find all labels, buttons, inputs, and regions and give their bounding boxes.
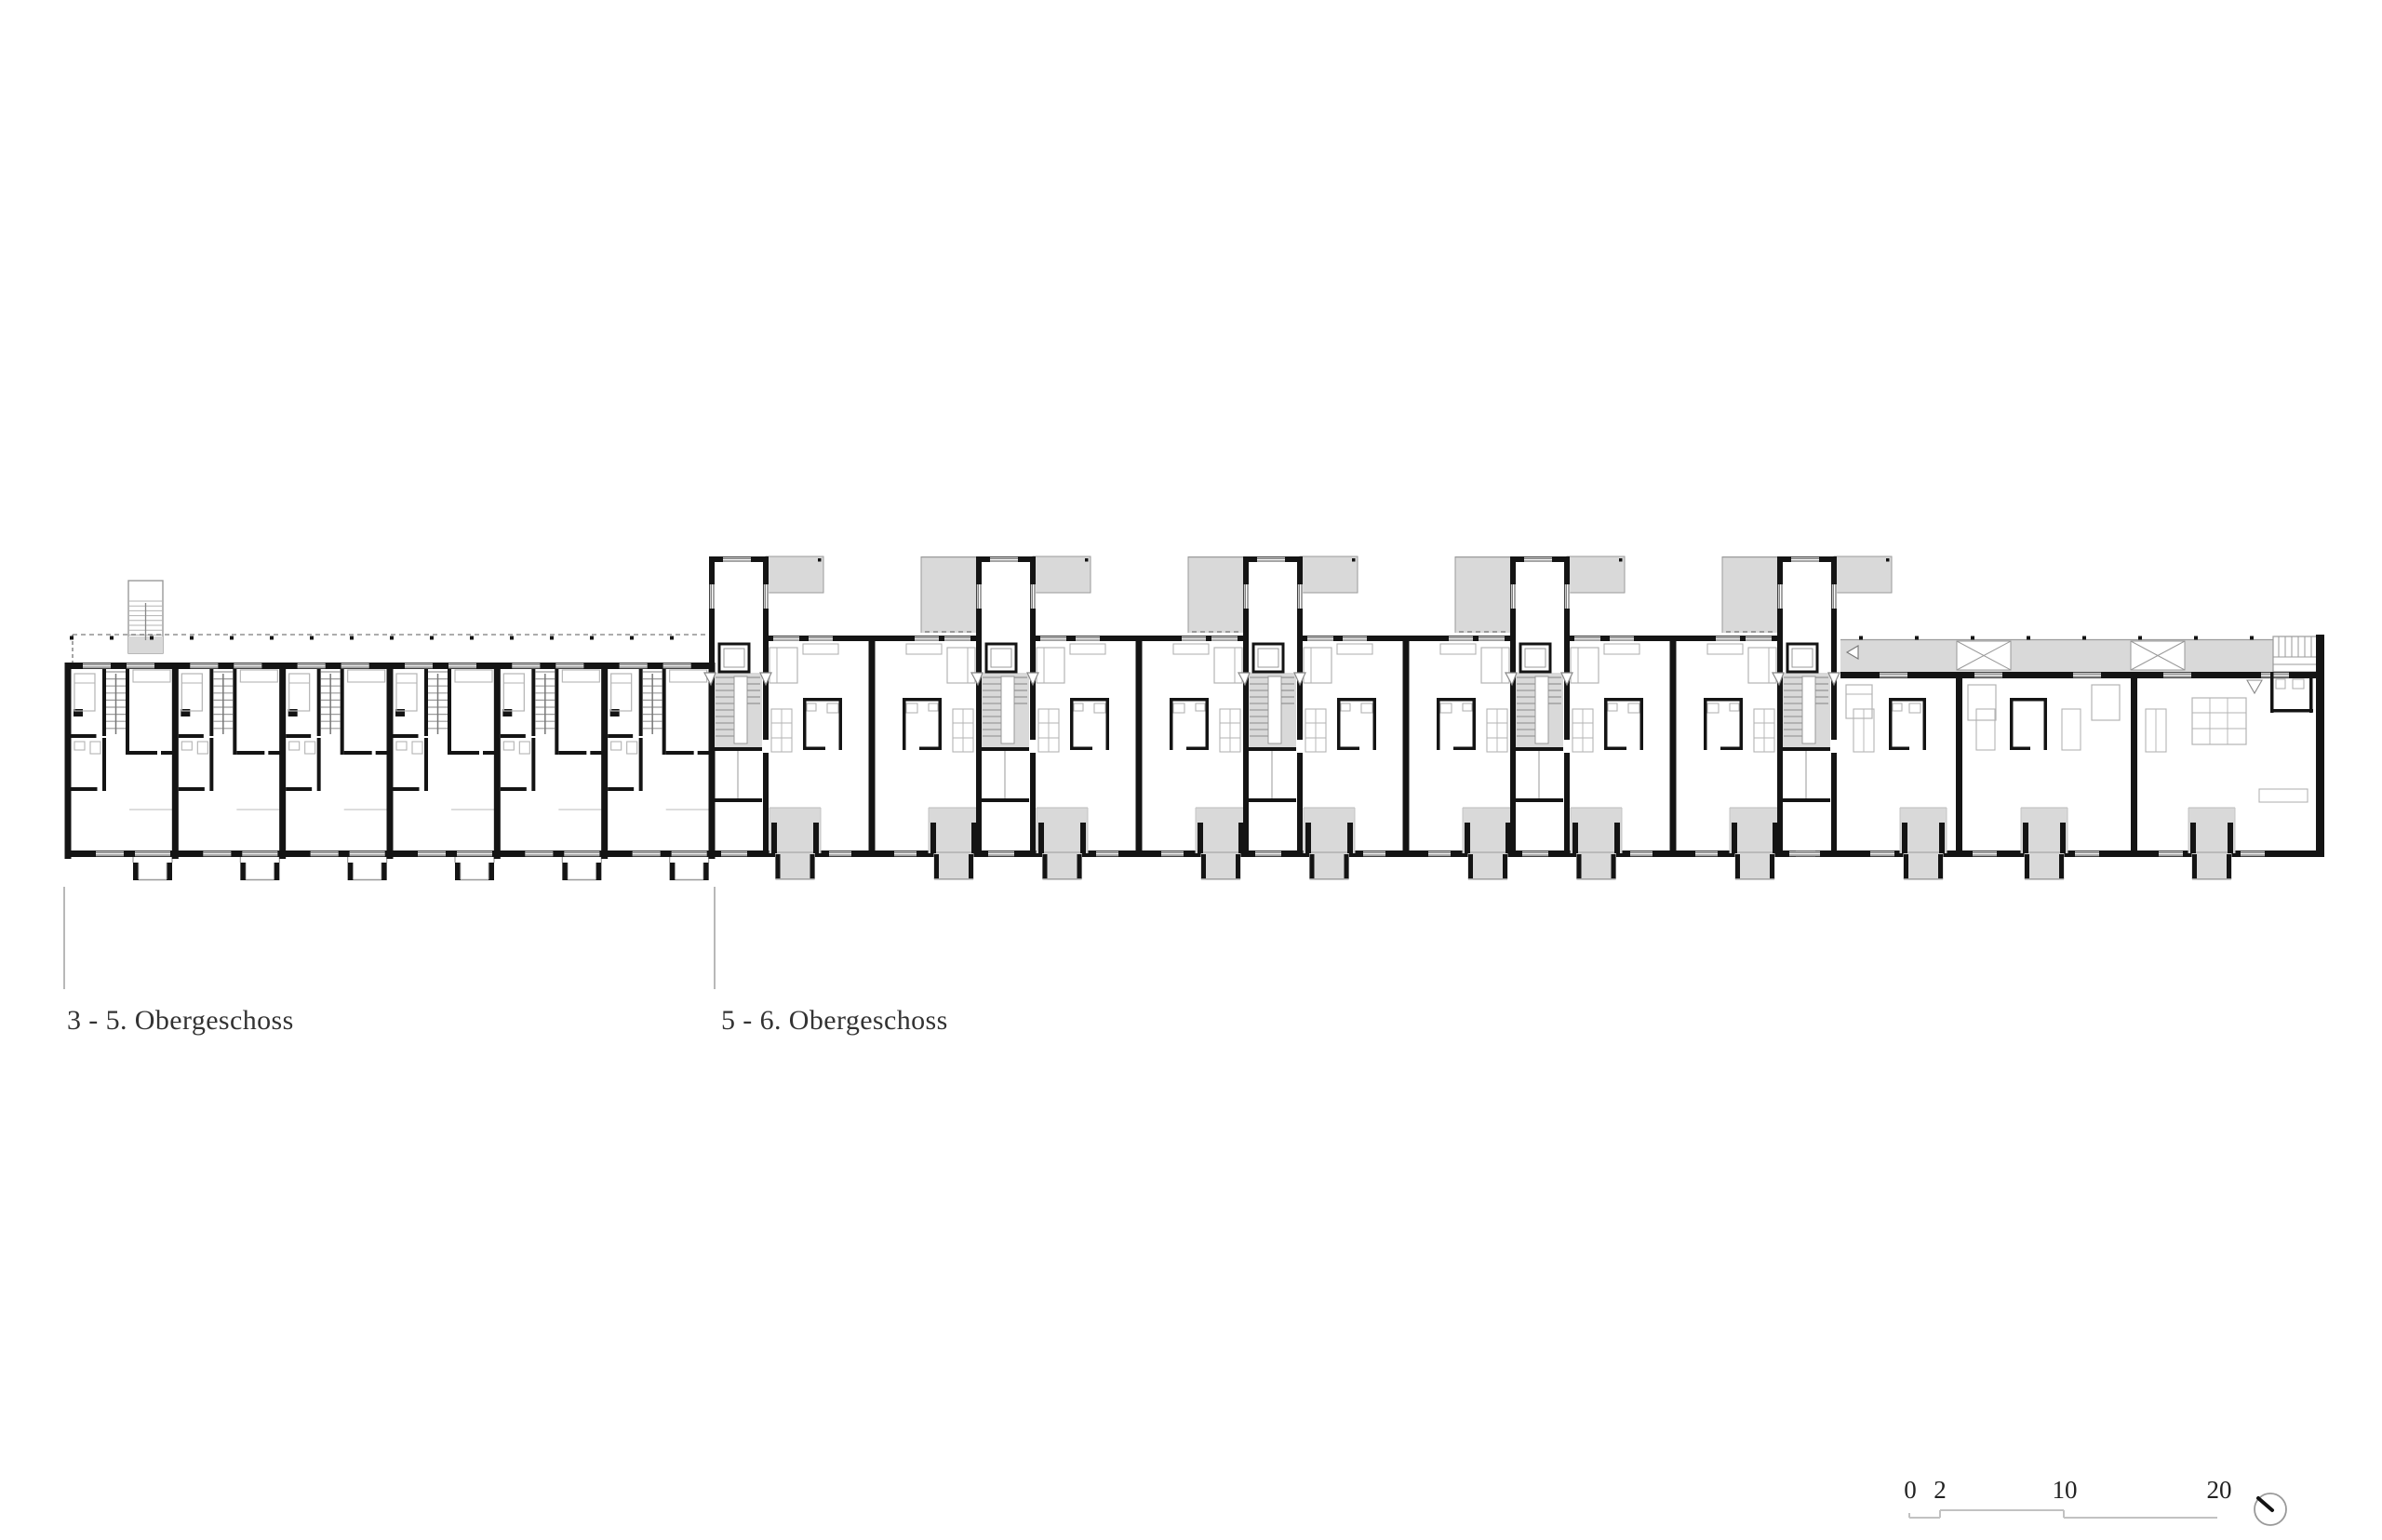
scale-tick-2: 2 [1934, 1478, 1947, 1503]
right-section-label: 5 - 6. Obergeschoss [721, 1007, 948, 1035]
left-section-label: 3 - 5. Obergeschoss [67, 1007, 294, 1035]
drawing-canvas: 3 - 5. Obergeschoss 5 - 6. Obergeschoss … [0, 0, 2382, 1540]
scale-tick-10: 10 [2053, 1478, 2078, 1503]
scale-tick-20: 20 [2207, 1478, 2232, 1503]
north-indicator-icon [2255, 1493, 2286, 1525]
floor-plan-drawing [0, 0, 2382, 1540]
scale-tick-0: 0 [1904, 1478, 1917, 1503]
